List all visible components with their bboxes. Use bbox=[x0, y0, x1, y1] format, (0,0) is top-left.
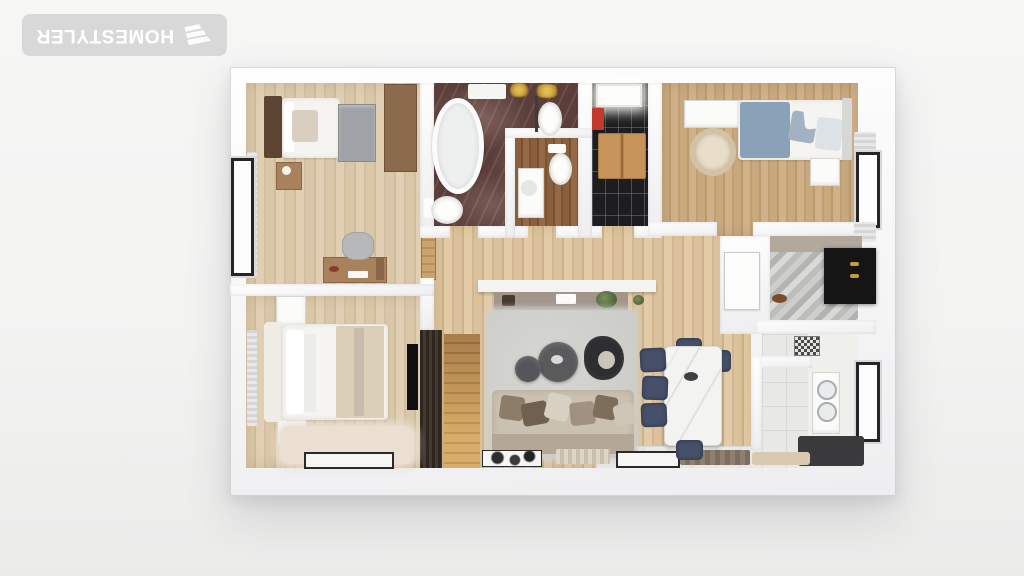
master-throw bbox=[354, 328, 364, 416]
watermark-text: HOMESTYLER bbox=[36, 24, 174, 46]
dining-chair-bottom bbox=[676, 440, 703, 460]
wall-media-room-bottom bbox=[756, 320, 876, 334]
wall-bath-bottom-2 bbox=[478, 226, 528, 238]
entry-border-mat bbox=[616, 451, 680, 468]
master-curtain bbox=[247, 330, 257, 426]
bedroom1-keyboard bbox=[348, 271, 368, 278]
wall-bath-closet-divider bbox=[578, 83, 592, 238]
bedroom1-gray-dresser bbox=[338, 104, 376, 162]
bathtub bbox=[432, 98, 484, 194]
master-pillow-row bbox=[286, 330, 304, 414]
bedroom2-papasan-chair bbox=[690, 128, 736, 176]
sofa-pillow-6 bbox=[612, 402, 637, 427]
bath-toilet bbox=[431, 196, 463, 224]
master-headboard bbox=[264, 322, 284, 422]
closet-ceiling-light bbox=[596, 84, 642, 107]
wall-bedroom2-bottom-left bbox=[648, 222, 717, 236]
dining-chair-left-2 bbox=[642, 376, 669, 401]
fireplace-handle-1 bbox=[850, 262, 859, 266]
washer-door-top bbox=[817, 380, 837, 400]
media-room-door bbox=[724, 252, 760, 310]
entry-rug-beige bbox=[752, 452, 810, 465]
wc-toilet-tank bbox=[548, 144, 566, 153]
master-border-mat bbox=[304, 452, 394, 469]
laundry-window bbox=[856, 362, 880, 442]
bath-sink bbox=[538, 102, 562, 136]
coffee-table-decor bbox=[551, 355, 563, 364]
dining-table-vase bbox=[684, 372, 698, 381]
bedroom1-shelf-ladder bbox=[376, 258, 384, 280]
master-pillow-row-2 bbox=[304, 334, 316, 412]
washer-door-bottom bbox=[817, 402, 837, 422]
bath-towel-mat bbox=[468, 84, 506, 99]
watermark-badge: HOMESTYLER bbox=[22, 14, 227, 56]
bedroom1-lamp bbox=[282, 166, 291, 175]
closet-red-box bbox=[592, 108, 604, 130]
console-plant-small bbox=[633, 295, 644, 305]
armchair-cushion bbox=[598, 351, 615, 369]
wc-sink bbox=[521, 180, 537, 196]
bedroom2-curtain-top bbox=[854, 132, 876, 152]
staircase-treads bbox=[444, 334, 480, 468]
bath-chandelier-left bbox=[508, 83, 530, 97]
bedroom1-wardrobe bbox=[384, 84, 417, 172]
master-wall-tv bbox=[407, 344, 418, 410]
bedroom2-pillow-3 bbox=[814, 117, 843, 152]
staircase-railing bbox=[420, 330, 442, 468]
media-room-shoes bbox=[772, 294, 787, 303]
coffee-table-small bbox=[515, 356, 541, 382]
wall-entry-dining-divider bbox=[751, 356, 762, 450]
wall-closet-bedroom2-divider bbox=[648, 83, 662, 236]
bedroom1-desk-flowers bbox=[329, 266, 339, 272]
console-candles bbox=[502, 295, 515, 306]
console-tray bbox=[556, 294, 576, 304]
dining-chair-left-3 bbox=[641, 403, 668, 428]
entry-runner-light bbox=[556, 449, 610, 464]
closet-cardboard-box bbox=[598, 133, 646, 179]
dining-table-plate bbox=[686, 394, 698, 406]
console-plant bbox=[596, 291, 617, 308]
bedroom1-window bbox=[231, 158, 254, 276]
wc-toilet bbox=[549, 153, 572, 185]
floorplan-render-canvas: HOMESTYLER bbox=[0, 0, 1024, 576]
living-console-shelf bbox=[478, 280, 656, 292]
bedroom2-headboard bbox=[842, 98, 852, 160]
fireplace-handle-2 bbox=[850, 274, 859, 278]
bedroom2-window bbox=[856, 152, 880, 228]
wall-wc-left bbox=[505, 128, 515, 238]
dining-chair-left-1 bbox=[639, 347, 666, 372]
bedroom1-bed-headboard bbox=[264, 96, 282, 158]
wall-between-left-bedrooms bbox=[230, 284, 434, 296]
bedroom2-dresser bbox=[684, 100, 740, 128]
entry-qr-doormat bbox=[794, 336, 820, 356]
bedroom1-knit-blanket bbox=[292, 110, 318, 142]
wall-bath-bottom-1 bbox=[420, 226, 450, 238]
entry-art-mat bbox=[482, 450, 542, 467]
bedroom2-blue-duvet bbox=[740, 102, 790, 158]
homestyler-logo-icon bbox=[183, 22, 213, 49]
bedroom2-nightstand bbox=[810, 158, 840, 186]
bedroom1-desk-chair bbox=[342, 232, 374, 260]
